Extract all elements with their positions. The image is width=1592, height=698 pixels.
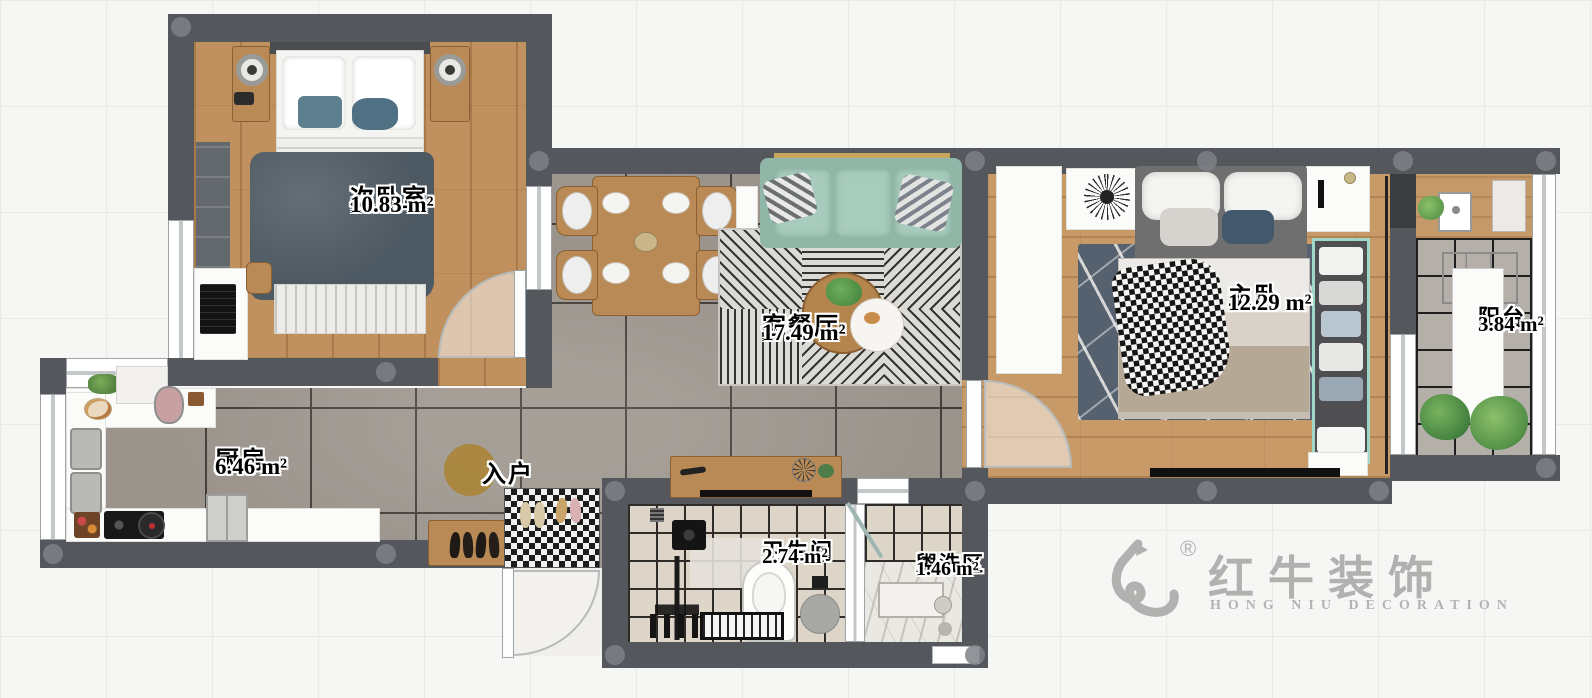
dining-chair-cushion-1: [562, 192, 592, 230]
wall-balcony-bottom: [1390, 455, 1560, 481]
mb-lamp-dot: [1344, 172, 1356, 184]
wall-joint: [171, 17, 191, 37]
wall-joint: [605, 481, 625, 501]
wardrobe-item: [1319, 343, 1363, 371]
wall-joint: [1393, 151, 1413, 171]
wall-kitchen-left-top-stub: [40, 358, 66, 394]
wall-joint: [529, 151, 549, 171]
room-area: 12.29 m²: [1228, 290, 1312, 316]
wall-joint: [965, 481, 985, 501]
sb-cushion-blue-left: [298, 96, 342, 128]
wall-bath-left: [602, 478, 628, 668]
secondary-bedroom-door-leaf: [514, 270, 526, 358]
dining-chair-cushion-3: [702, 192, 732, 230]
console-fan-decor: [792, 458, 816, 482]
bull-icon: [1108, 538, 1186, 628]
watermark-logo: ® 红牛装饰 HONG NIU DECORATION: [1108, 536, 1438, 628]
console-plant-decor: [818, 464, 834, 478]
kitchen-sink-lower: [70, 472, 102, 514]
window-sb-dining: [526, 186, 552, 290]
balcony-plant-1: [1420, 394, 1470, 440]
wall-joint: [605, 645, 625, 665]
sb-cushion-blue-right: [352, 98, 398, 130]
wall-joint: [965, 645, 985, 665]
hall-tv: [700, 490, 812, 497]
kitchen-food-tray: [74, 512, 100, 538]
sofa-cushion-2: [834, 168, 892, 238]
sb-duvet: [250, 152, 434, 300]
window-kitchen-left: [40, 394, 66, 540]
room-area: 2.74 m²: [762, 544, 828, 569]
mb-tv-strip: [1150, 468, 1340, 477]
floor-plan: 次卧室 10.83 m² 客餐厅 17.49 m² 厨房 6.46 m² 入户 …: [0, 0, 1592, 698]
wall-joint: [376, 362, 396, 382]
wall-joint: [1197, 151, 1217, 171]
wall-sb-top: [168, 14, 552, 42]
sb-tv: [200, 284, 236, 334]
toilet-bowl: [752, 572, 786, 616]
wardrobe-item: [1319, 247, 1363, 275]
sb-wardrobe: [196, 142, 230, 268]
room-area: 6.46 m²: [215, 454, 287, 480]
wall-joint: [1197, 481, 1217, 501]
wall-living-master: [962, 148, 988, 380]
room-area: 10.83 m²: [350, 192, 434, 218]
mat-slipper-2: [534, 502, 545, 528]
mb-desk-topright: [1306, 166, 1370, 232]
room-area: 3.84 m²: [1478, 312, 1544, 337]
bathroom-stool: [800, 594, 840, 634]
wall-joint: [1369, 481, 1389, 501]
balcony-sink-drain: [1452, 206, 1460, 214]
kitchen-rice-cooker: [154, 386, 184, 424]
shower-head: [672, 520, 706, 550]
bathroom-shelf-item: [812, 576, 828, 588]
mb-pillow-gray: [1160, 208, 1218, 246]
mb-cabinet-left: [996, 166, 1062, 374]
wall-sb-left-upper: [168, 14, 194, 220]
window-master-balcony: [1390, 334, 1416, 455]
coffee-table-tray: [850, 298, 904, 352]
room-name: 入户: [482, 454, 534, 489]
sb-speaker: [234, 92, 254, 105]
kitchen-eggs-plate: [84, 398, 112, 420]
window-washing-top: [857, 478, 909, 504]
mb-pendant-core: [1100, 190, 1114, 204]
wall-bath-bottom: [602, 642, 988, 668]
dining-chair-cushion-2: [562, 256, 592, 294]
dining-plate-4: [662, 262, 690, 284]
shower-handles: [650, 614, 702, 638]
mb-throw-houndstooth: [1109, 255, 1234, 399]
dining-centerpiece: [634, 232, 658, 252]
kitchen-pan-dot: [149, 523, 155, 529]
balcony-appliance: [1492, 180, 1526, 232]
entry-doormat: [504, 488, 600, 568]
mb-wardrobe: [1312, 238, 1370, 464]
sofa-pillow-right: [893, 173, 954, 233]
wall-joint: [1536, 458, 1556, 478]
kitchen-sink-upper: [70, 428, 102, 470]
towel-rack: [700, 612, 784, 640]
mat-slipper-1: [520, 502, 531, 528]
wall-sb-bottom: [168, 358, 438, 386]
bathroom-floor-drain: [650, 508, 664, 522]
kitchen-spice-box: [188, 392, 204, 406]
room-area: 17.49 m²: [762, 320, 846, 346]
dining-plate-3: [602, 262, 630, 284]
wardrobe-item: [1319, 377, 1363, 401]
washing-sink: [934, 596, 952, 614]
mb-pillow-blue: [1222, 210, 1274, 244]
wall-joint: [1536, 151, 1556, 171]
dining-plate-2: [662, 192, 690, 214]
wall-master-bottom: [962, 478, 1392, 504]
wardrobe-item: [1317, 427, 1365, 453]
coffee-table-plant: [826, 278, 862, 306]
mb-sliding-track: [1385, 176, 1388, 474]
sb-lamp-left-core: [247, 65, 257, 75]
mb-bed-foot-line: [1118, 412, 1310, 419]
mb-desk-pen: [1318, 180, 1324, 208]
master-door-leaf: [966, 380, 982, 468]
brand-name-en: HONG NIU DECORATION: [1210, 598, 1514, 614]
sb-lamp-right-core: [445, 65, 455, 75]
wardrobe-item: [1321, 311, 1361, 337]
wall-joint: [376, 544, 396, 564]
wardrobe-item: [1319, 281, 1363, 305]
room-area: 1.46 m²: [916, 558, 979, 581]
tray-food: [864, 312, 880, 324]
dining-plate-1: [602, 192, 630, 214]
sb-bed-foot-blanket: [274, 284, 426, 334]
entry-door-leaf: [502, 568, 514, 658]
secondary-bedroom-door-threshold: [438, 358, 526, 386]
wall-joint: [43, 544, 63, 564]
wall-joint: [965, 151, 985, 171]
sb-desk-chair: [246, 262, 272, 294]
washing-faucet: [938, 622, 952, 636]
registered-mark: ®: [1180, 536, 1196, 562]
kitchen-fridge: [206, 494, 248, 542]
